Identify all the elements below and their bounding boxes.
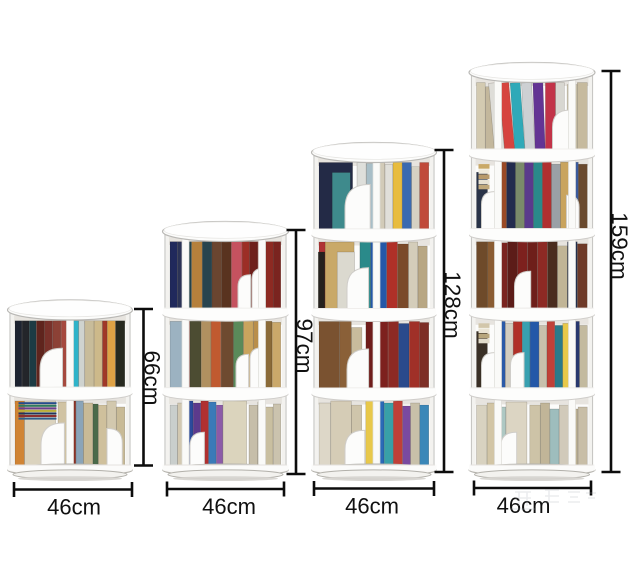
svg-text:46cm: 46cm <box>202 494 256 519</box>
svg-text:97cm: 97cm <box>292 318 317 373</box>
svg-text:46cm: 46cm <box>345 494 399 519</box>
svg-text:159cm: 159cm <box>607 212 629 280</box>
svg-text:46cm: 46cm <box>47 495 101 520</box>
svg-text:46cm: 46cm <box>497 493 551 518</box>
svg-text:66cm: 66cm <box>140 350 165 405</box>
svg-text:128cm: 128cm <box>440 271 465 339</box>
